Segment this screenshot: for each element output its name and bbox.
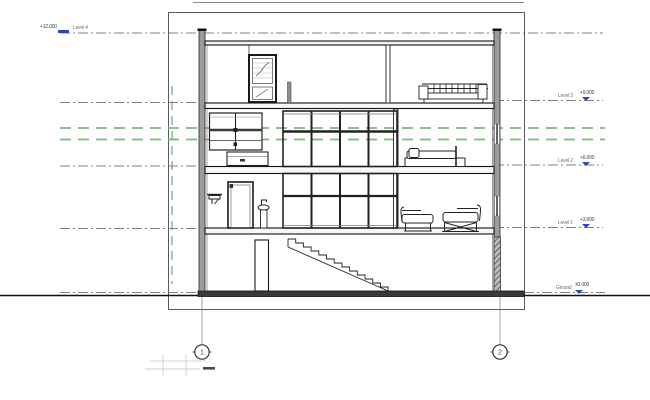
level2-elevation-label: +6.000	[580, 156, 594, 161]
grid-bubble-2: 2	[491, 345, 510, 359]
right-wall-base-hatch	[494, 237, 501, 291]
ground-floor-room	[255, 239, 388, 291]
top-floor-partition	[386, 45, 390, 103]
level2-bed	[405, 146, 465, 167]
ground-elevation-label: ±0.000	[575, 283, 589, 288]
level1-wall-sink	[207, 195, 222, 205]
level1-marker-icon	[582, 224, 590, 228]
ground-marker-icon	[575, 290, 583, 294]
grid-bubble-1: 1	[193, 345, 212, 359]
top-floor-room	[249, 45, 488, 103]
corner-annotation-tick	[203, 367, 215, 370]
left-exterior-wall	[199, 30, 205, 291]
level2-vanity	[227, 152, 268, 166]
curtain-wall-lower	[283, 174, 397, 229]
roof-slab	[205, 41, 494, 45]
level3-marker-icon	[582, 97, 590, 101]
tall-window-cabinet	[249, 55, 276, 102]
level3-name-label: Level 3	[558, 94, 573, 99]
level-datum-lines	[60, 33, 605, 293]
level4-elevation-label: +12.000	[40, 25, 57, 30]
grid-bubble-2-label: 2	[498, 350, 502, 357]
level4-name-label: Level 4	[73, 26, 88, 31]
staircase	[288, 239, 388, 291]
level2-name-label: Level 2	[558, 159, 573, 164]
level1-name-label: Level 1	[558, 221, 573, 226]
level3-floor-slab	[205, 103, 494, 109]
level1-armchair-a	[401, 207, 433, 231]
level1-door	[228, 182, 253, 228]
level2-marker-icon	[582, 162, 590, 166]
ground-slab	[198, 291, 524, 297]
level1-basin-pedestal	[258, 200, 269, 228]
level1-elevation-label: +3.000	[580, 218, 594, 223]
level2-floor-slab	[205, 167, 494, 174]
section-drawing: 1 2	[0, 0, 650, 400]
level2-left-window-unit	[210, 113, 263, 150]
section-drawing-canvas: 1 2 +12.000 Level 4 Level 3 +9.000 Level…	[0, 0, 650, 400]
ground-floor-column	[255, 240, 269, 291]
ground-name-label: Ground	[556, 286, 571, 291]
level4-marker-icon	[58, 30, 69, 33]
right-parapet-cap	[493, 29, 502, 32]
left-parapet-cap	[198, 29, 207, 32]
structural-grid: 1 2	[193, 297, 510, 359]
level3-elevation-label: +9.000	[580, 91, 594, 96]
viewport-border	[169, 13, 525, 310]
top-floor-post	[288, 82, 292, 103]
grid-bubble-1-label: 1	[200, 350, 204, 357]
green-reference-lines	[60, 86, 605, 284]
level1-room	[207, 182, 481, 232]
top-floor-daybed-shelf	[419, 84, 488, 103]
